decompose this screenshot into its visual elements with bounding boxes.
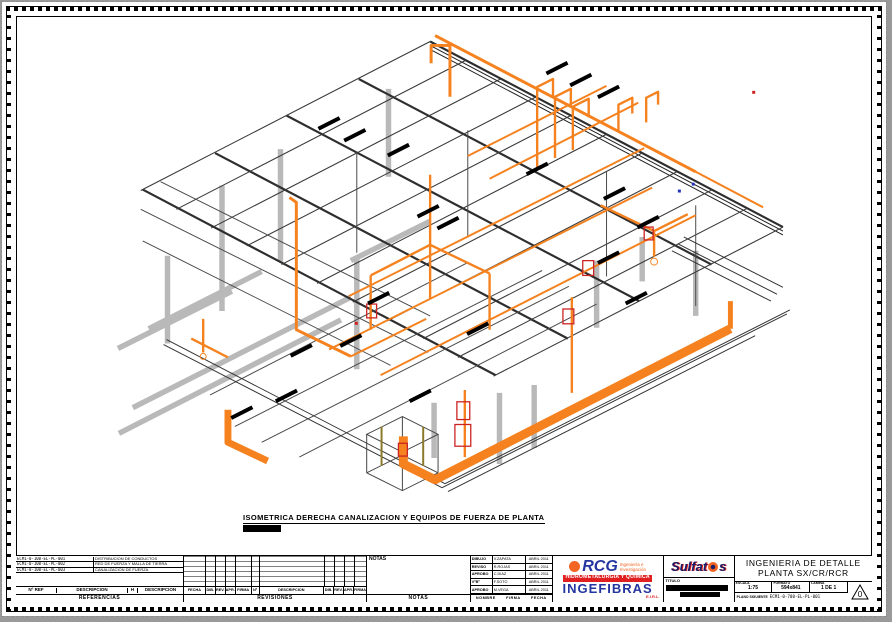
signoff-row: REVISO R.ROJAS ABRIL 2011: [471, 564, 552, 572]
notes-band: NOTAS: [367, 594, 470, 602]
rcg-circle-icon: [569, 561, 580, 572]
revision-triangle-icon: 0: [851, 584, 869, 600]
notes-box: NOTAS NOTAS: [367, 556, 471, 602]
titulo-cell: TITULO: [664, 578, 734, 602]
escala-field: ESCALA 1:75: [735, 582, 773, 592]
signoff-footer: NOMBRE FIRMA FECHA: [471, 594, 552, 602]
rcg-tagline: Ingeniería e Investigación: [620, 562, 646, 572]
redacted-scale-bar: [243, 525, 281, 532]
title-block: ECM1-0-100-EL-PL-001 DISTRIBUCION DE CON…: [16, 555, 872, 602]
references-table: ECM1-0-100-EL-PL-001 DISTRIBUCION DE CON…: [16, 556, 184, 602]
contractor-logo: RCG Ingeniería e Investigación HIDROMETA…: [553, 556, 664, 602]
client-logo: Sulfat s: [664, 556, 734, 578]
revision-field: 0: [848, 582, 872, 602]
references-band: REFERENCIAS: [16, 594, 183, 602]
roof-purlins: [141, 41, 783, 376]
sulfatos-circle-icon: [708, 562, 718, 572]
formato-field: FORMATO 594x841: [772, 582, 810, 592]
rcg-name: RCG: [582, 559, 618, 575]
signoff-row: APROBO C.DIAZ ABRIL 2011: [471, 571, 552, 579]
drawing-sheet: ISOMETRICA DERECHA CANALIZACION Y EQUIPO…: [2, 2, 886, 616]
signoff-table: DIBUJO V.ZAPATA ABRIL 2011 REVISO R.ROJA…: [471, 556, 553, 602]
lamina-field: LAMINA 1 DE 1: [810, 582, 848, 592]
cable-trays: [191, 36, 763, 480]
project-block: INGENIERIA DE DETALLE PLANTA SX/CR/RCR E…: [735, 556, 872, 602]
svg-text:0: 0: [858, 590, 863, 599]
tag-label-marks: [230, 61, 659, 420]
revisions-header: FECHA DIB. REV. APR. FIRMA Nº DESCRIPCIO…: [184, 586, 366, 594]
contractor-suffix: E.I.R.L.: [646, 595, 660, 599]
next-plan-field: PLANO SIGUIENTE ECM1-0-700-EL-PL-001: [735, 593, 848, 602]
references-header: Nº REF DESCRIPCION H DESCRIPCION: [16, 586, 183, 594]
notes-label: NOTAS: [367, 556, 470, 594]
drawing-caption: ISOMETRICA DERECHA CANALIZACION Y EQUIPO…: [243, 513, 545, 524]
revisions-grid: FECHA DIB. REV. APR. FIRMA Nº DESCRIPCIO…: [184, 556, 367, 602]
signoff-row: DIBUJO V.ZAPATA ABRIL 2011: [471, 556, 552, 564]
redacted-title-bar: [666, 585, 728, 591]
signoff-row: APROBO M.VEGA ABRIL 2011: [471, 586, 552, 594]
reference-row: ECM1-0-100-EL-PL-003 CANALIZACION DE FUE…: [16, 568, 183, 573]
client-block: Sulfat s TITULO: [664, 556, 735, 602]
electrical-equipment-boxes: [367, 227, 653, 456]
cad-viewport: ISOMETRICA DERECHA CANALIZACION Y EQUIPO…: [0, 0, 892, 622]
redacted-title-bar-2: [680, 592, 720, 597]
revisions-band: REVISIONES: [184, 594, 366, 602]
ingefibras-name: INGEFIBRAS: [563, 582, 653, 595]
revisions-empty-rows: [184, 556, 366, 586]
signoff-row: VºBº F.SOTO ABRIL 2011: [471, 579, 552, 587]
project-title: INGENIERIA DE DETALLE PLANTA SX/CR/RCR: [735, 556, 872, 582]
